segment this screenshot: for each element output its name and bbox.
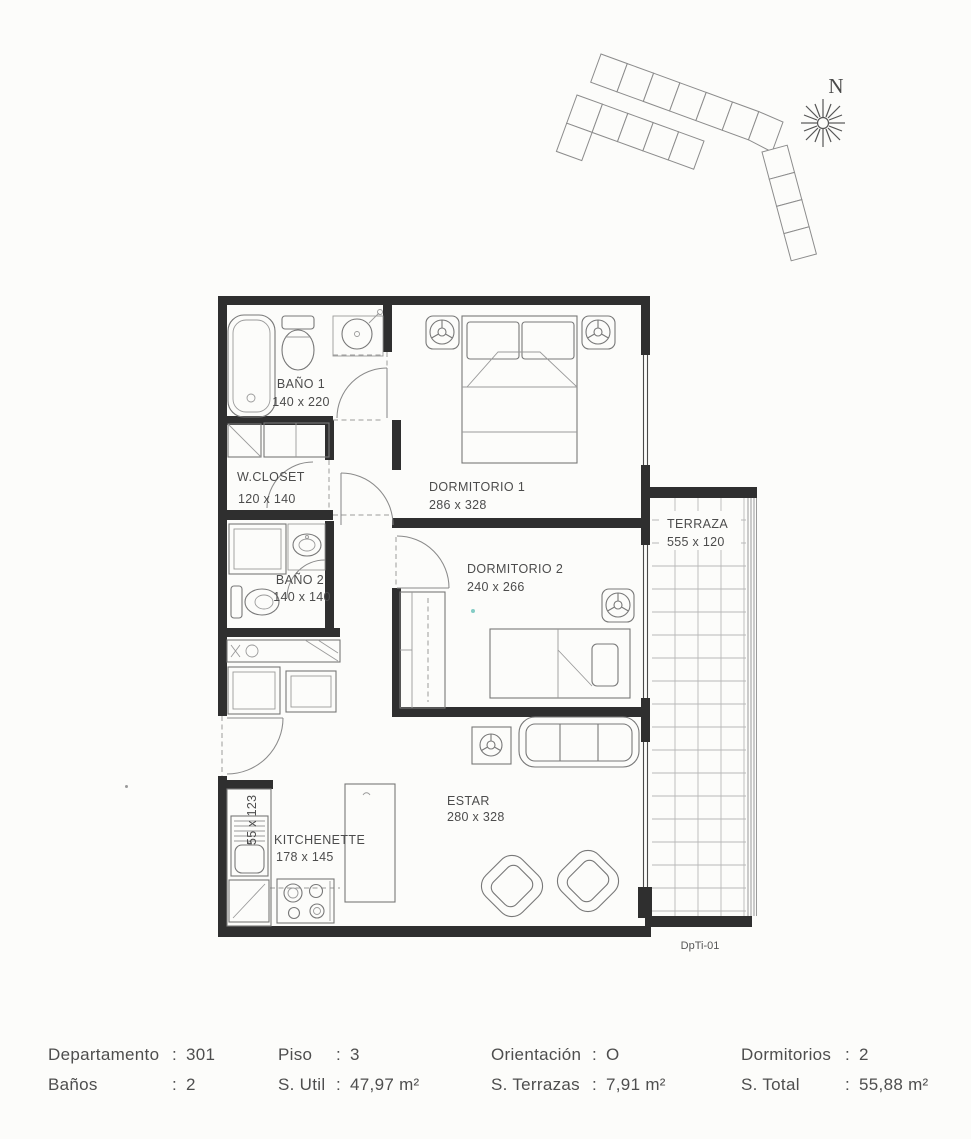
info-value: O: [606, 1040, 620, 1070]
bano2-dims: 140 x 140: [273, 590, 331, 604]
info-label: Dormitorios: [741, 1040, 845, 1070]
wcloset-label: W.CLOSET: [237, 470, 305, 484]
bathtub: [228, 315, 275, 417]
info-value: 2: [186, 1070, 196, 1100]
window-estar-terrace: [644, 742, 648, 887]
entry-door: [227, 718, 283, 774]
bano1-dims: 140 x 220: [272, 395, 330, 409]
side-table: [472, 727, 511, 764]
lamp: [606, 593, 630, 617]
sofa: [519, 717, 639, 767]
estar-label: ESTAR: [447, 794, 490, 808]
info-row: Dormitorios:2: [741, 1040, 929, 1070]
info-column-2: Piso:3 S. Util:47,97 m²: [278, 1040, 420, 1100]
info-value: 7,91 m²: [606, 1070, 666, 1100]
north-label: N: [828, 74, 843, 98]
info-value: 301: [186, 1040, 215, 1070]
windows: [644, 355, 648, 887]
window-dormitorio2: [644, 545, 648, 698]
compass-rose: N: [801, 74, 845, 147]
info-label: S. Total: [741, 1070, 845, 1100]
dormitorio2-label: DORMITORIO 2: [467, 562, 563, 576]
info-row: Baños:2: [48, 1070, 215, 1100]
info-row: Piso:3: [278, 1040, 420, 1070]
info-column-1: Departamento:301 Baños:2: [48, 1040, 215, 1100]
laundry-cabinets: [227, 640, 340, 714]
info-label: S. Terrazas: [491, 1070, 592, 1100]
bathroom-sink: [333, 310, 383, 357]
terraza-dims: 555 x 120: [667, 535, 725, 549]
terraza-label: TERRAZA: [667, 517, 728, 531]
lamp: [430, 320, 454, 344]
apartment-floor-plan: BAÑO 1 140 x 220 W.CLOSET 120 x 140 BAÑO…: [200, 285, 775, 960]
info-value: 2: [859, 1040, 869, 1070]
dormitorio2-furniture: [400, 589, 634, 708]
info-value: 3: [350, 1040, 360, 1070]
info-column-3: Orientación:O S. Terrazas:7,91 m²: [491, 1040, 666, 1100]
info-label: Departamento: [48, 1040, 172, 1070]
kitchenette-label: KITCHENETTE: [274, 833, 365, 847]
nightstand-left: [426, 316, 459, 349]
info-label: Orientación: [491, 1040, 592, 1070]
wardrobe: [400, 592, 445, 708]
scan-mark: [471, 609, 475, 613]
table-lamp: [480, 734, 502, 756]
wcloset-dims: 120 x 140: [238, 492, 296, 506]
terrace-grid: [652, 498, 757, 916]
estar-dims: 280 x 328: [447, 810, 505, 824]
armchair-right: [551, 844, 625, 918]
bano1-door: [337, 368, 387, 418]
info-row: Orientación:O: [491, 1040, 666, 1070]
kitchenette-dims: 178 x 145: [276, 850, 334, 864]
scanned-floor-plan-page: N: [0, 0, 971, 1139]
single-bed: [490, 629, 630, 698]
dormitorio1-furniture: [426, 316, 615, 463]
bathroom2-sink: [288, 524, 325, 570]
info-label: Baños: [48, 1070, 172, 1100]
bano1-label: BAÑO 1: [277, 377, 325, 391]
info-label: Piso: [278, 1040, 336, 1070]
info-column-4: Dormitorios:2 S. Total:55,88 m²: [741, 1040, 929, 1100]
wcloset-cabinets: [228, 423, 329, 457]
window-dormitorio1: [644, 355, 648, 465]
site-key-plan: N: [530, 25, 970, 285]
stove: [277, 879, 334, 923]
info-value: 47,97 m²: [350, 1070, 420, 1100]
info-row: S. Total:55,88 m²: [741, 1070, 929, 1100]
toilet2: [231, 586, 279, 618]
armchair-left: [475, 849, 549, 923]
info-row: Departamento:301: [48, 1040, 215, 1070]
lamp: [586, 320, 610, 344]
info-label: S. Util: [278, 1070, 336, 1100]
nightstand-right: [582, 316, 615, 349]
plan-code: DpTi-01: [681, 940, 720, 952]
double-bed: [462, 316, 577, 463]
dormitorio1-dims: 286 x 328: [429, 498, 487, 512]
dormitorio1-label: DORMITORIO 1: [429, 480, 525, 494]
nightstand2: [602, 589, 634, 622]
bano2-label: BAÑO 2: [276, 573, 324, 587]
info-row: S. Util:47,97 m²: [278, 1070, 420, 1100]
dormitorio2-door: [397, 536, 449, 588]
building-footprint: [556, 54, 816, 261]
shower: [229, 524, 286, 574]
info-row: S. Terrazas:7,91 m²: [491, 1070, 666, 1100]
scan-speck: [125, 785, 128, 788]
terrace-railing: [748, 498, 757, 916]
dormitorio2-dims: 240 x 266: [467, 580, 525, 594]
dormitorio1-door: [341, 473, 393, 525]
kitchen-sink-dims: 55 x 123: [245, 795, 259, 845]
info-value: 55,88 m²: [859, 1070, 929, 1100]
toilet: [282, 316, 314, 370]
